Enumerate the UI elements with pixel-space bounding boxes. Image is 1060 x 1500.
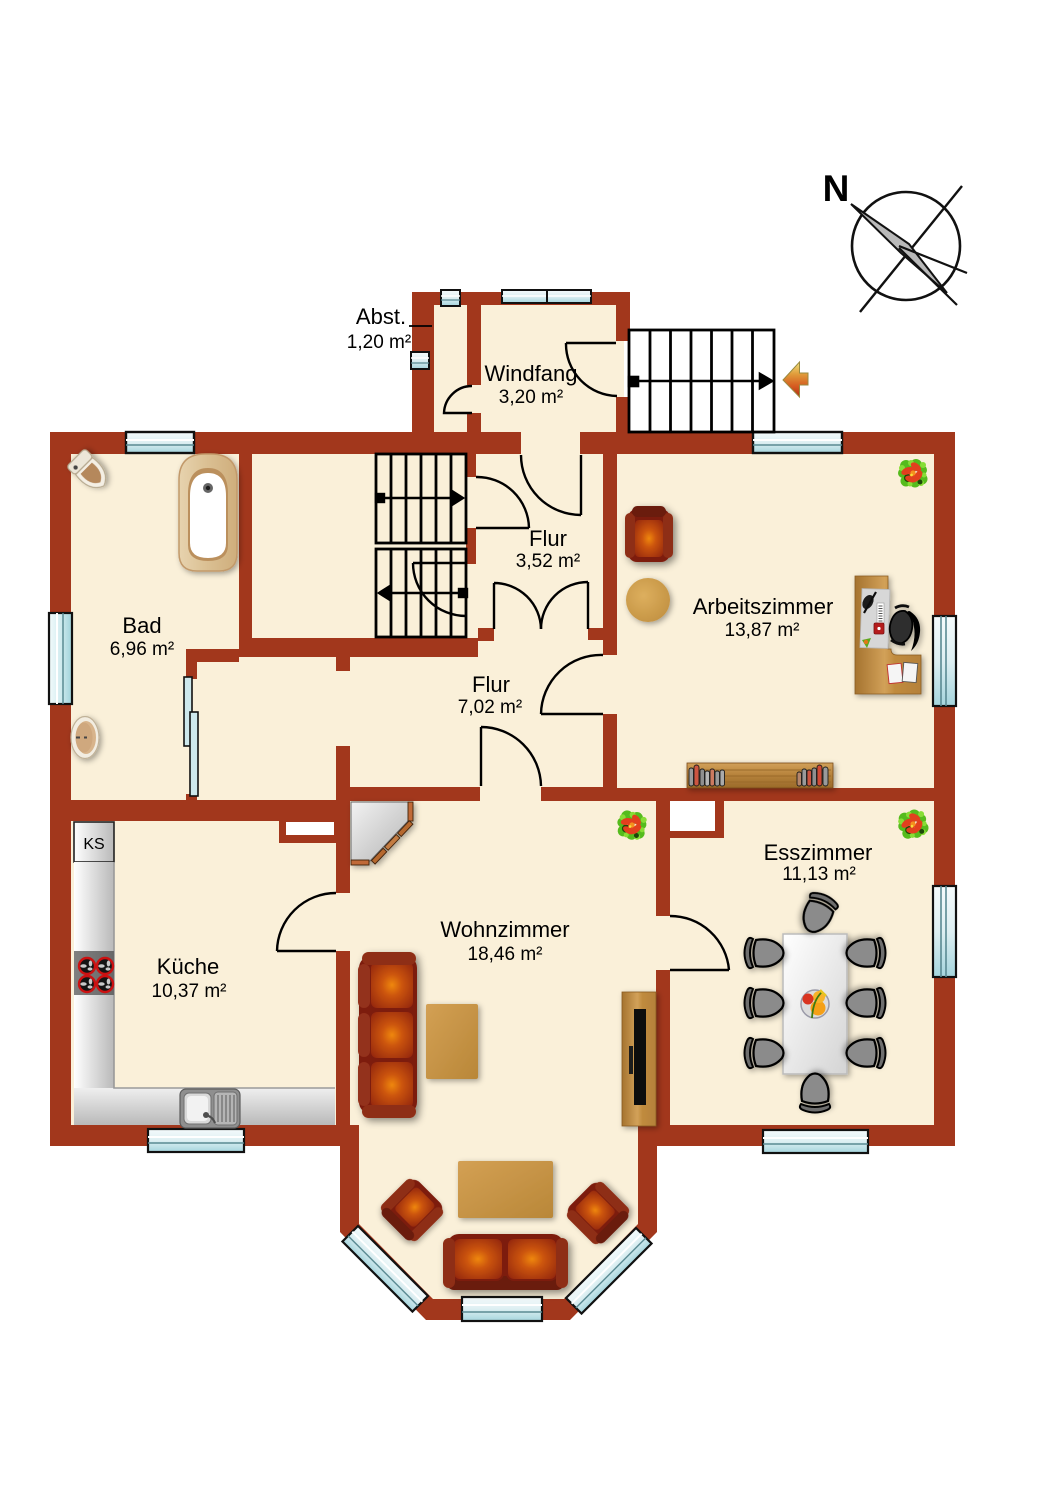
svg-text:Windfang: Windfang bbox=[485, 361, 578, 386]
svg-text:Flur: Flur bbox=[472, 672, 510, 697]
svg-text:Küche: Küche bbox=[157, 954, 219, 979]
svg-text:Bad: Bad bbox=[122, 613, 161, 638]
svg-text:11,13 m²: 11,13 m² bbox=[782, 864, 856, 885]
svg-text:10,37 m²: 10,37 m² bbox=[152, 981, 227, 1002]
svg-text:18,46 m²: 18,46 m² bbox=[468, 944, 543, 965]
svg-text:3,52 m²: 3,52 m² bbox=[516, 551, 580, 572]
svg-text:1,20 m²: 1,20 m² bbox=[347, 332, 411, 353]
svg-text:N: N bbox=[823, 168, 850, 209]
svg-text:Flur: Flur bbox=[529, 526, 567, 551]
svg-text:Wohnzimmer: Wohnzimmer bbox=[440, 917, 569, 942]
svg-text:6,96 m²: 6,96 m² bbox=[110, 639, 174, 660]
svg-text:13,87 m²: 13,87 m² bbox=[725, 620, 800, 641]
svg-text:Esszimmer: Esszimmer bbox=[764, 840, 873, 865]
svg-text:3,20 m²: 3,20 m² bbox=[499, 387, 563, 408]
svg-text:7,02 m²: 7,02 m² bbox=[458, 697, 522, 718]
svg-text:Arbeitszimmer: Arbeitszimmer bbox=[693, 594, 834, 619]
svg-text:Abst.: Abst. bbox=[356, 304, 406, 329]
svg-text:KS: KS bbox=[83, 836, 104, 853]
